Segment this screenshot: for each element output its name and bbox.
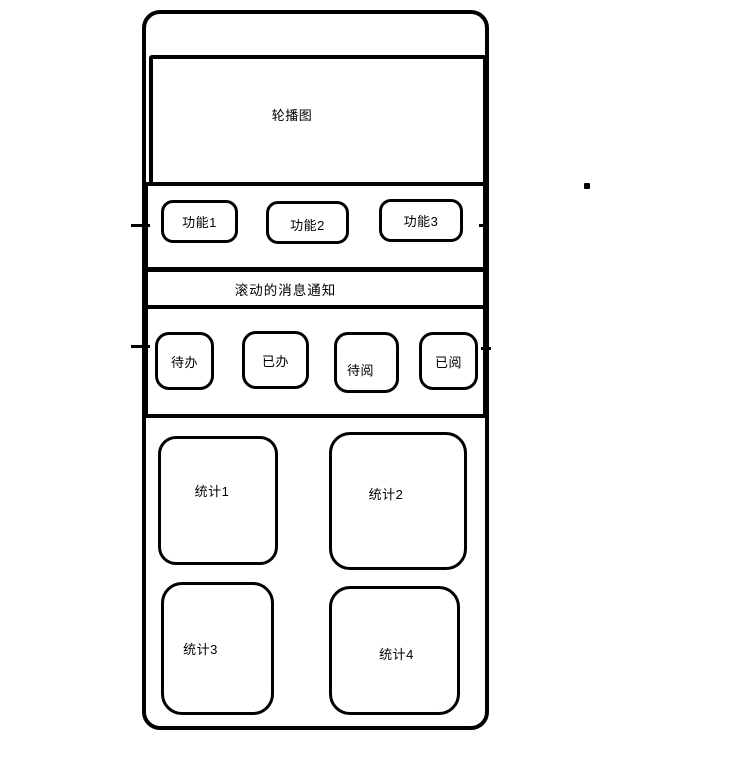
- function-button-3-label: 功能3: [404, 211, 439, 230]
- todo-button[interactable]: 待办: [155, 332, 214, 390]
- function-button-2-label: 功能2: [290, 215, 325, 234]
- done-button[interactable]: 已办: [242, 331, 309, 389]
- stat-card-4[interactable]: 统计4: [329, 586, 460, 715]
- read-button[interactable]: 已阅: [419, 332, 478, 390]
- carousel-label: 轮播图: [272, 105, 313, 124]
- read-button-label: 已阅: [435, 352, 462, 371]
- function-button-1[interactable]: 功能1: [161, 200, 238, 243]
- to-read-button[interactable]: 待阅: [334, 332, 399, 393]
- stat-card-1-label: 统计1: [195, 481, 230, 500]
- notice-bar: 滚动的消息通知: [144, 268, 487, 309]
- stat-card-2[interactable]: 统计2: [329, 432, 467, 570]
- stat-card-3[interactable]: 统计3: [161, 582, 274, 715]
- to-read-button-label: 待阅: [347, 360, 374, 379]
- stat-card-1[interactable]: 统计1: [158, 436, 278, 565]
- function-button-1-label: 功能1: [182, 212, 217, 231]
- stat-card-4-label: 统计4: [379, 644, 414, 663]
- stat-card-2-label: 统计2: [369, 484, 404, 503]
- edge-tick-right-top: [479, 224, 489, 227]
- stray-dot-mark: [584, 183, 590, 189]
- todo-button-label: 待办: [171, 352, 198, 371]
- stat-card-3-label: 统计3: [183, 639, 218, 658]
- carousel-region: 轮播图: [149, 55, 487, 186]
- diagram-canvas: 轮播图 功能1 功能2 功能3 滚动的消息通知 待办 已办 待阅 已阅 统计1 …: [0, 0, 739, 768]
- edge-tick-right-bottom: [481, 347, 491, 350]
- function-button-3[interactable]: 功能3: [379, 199, 463, 242]
- done-button-label: 已办: [262, 351, 289, 370]
- notice-bar-label: 滚动的消息通知: [235, 279, 337, 299]
- edge-tick-left-bottom: [131, 345, 150, 348]
- edge-tick-left-top: [131, 224, 150, 227]
- function-button-2[interactable]: 功能2: [266, 201, 349, 244]
